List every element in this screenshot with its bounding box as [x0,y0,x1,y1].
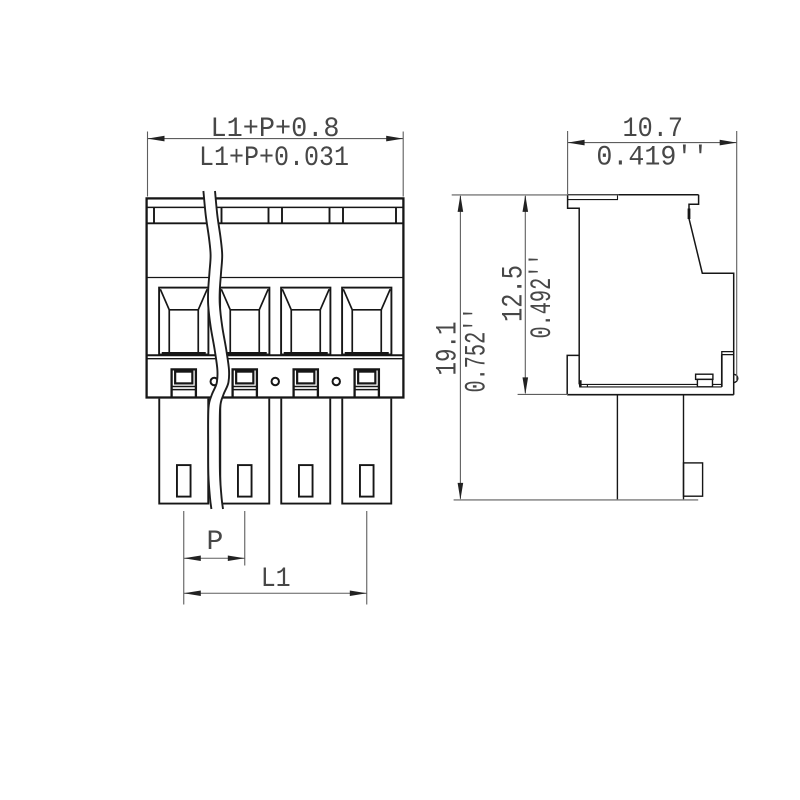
svg-text:L1+P+0.031: L1+P+0.031 [199,143,349,174]
svg-text:0.752'': 0.752'' [461,308,495,393]
svg-text:L1: L1 [261,564,291,595]
svg-text:P: P [207,527,224,558]
svg-text:0.492'': 0.492'' [526,254,560,339]
svg-text:10.7: 10.7 [623,114,684,145]
svg-text:L1+P+0.8: L1+P+0.8 [211,114,340,145]
svg-text:0.419'': 0.419'' [596,143,708,174]
